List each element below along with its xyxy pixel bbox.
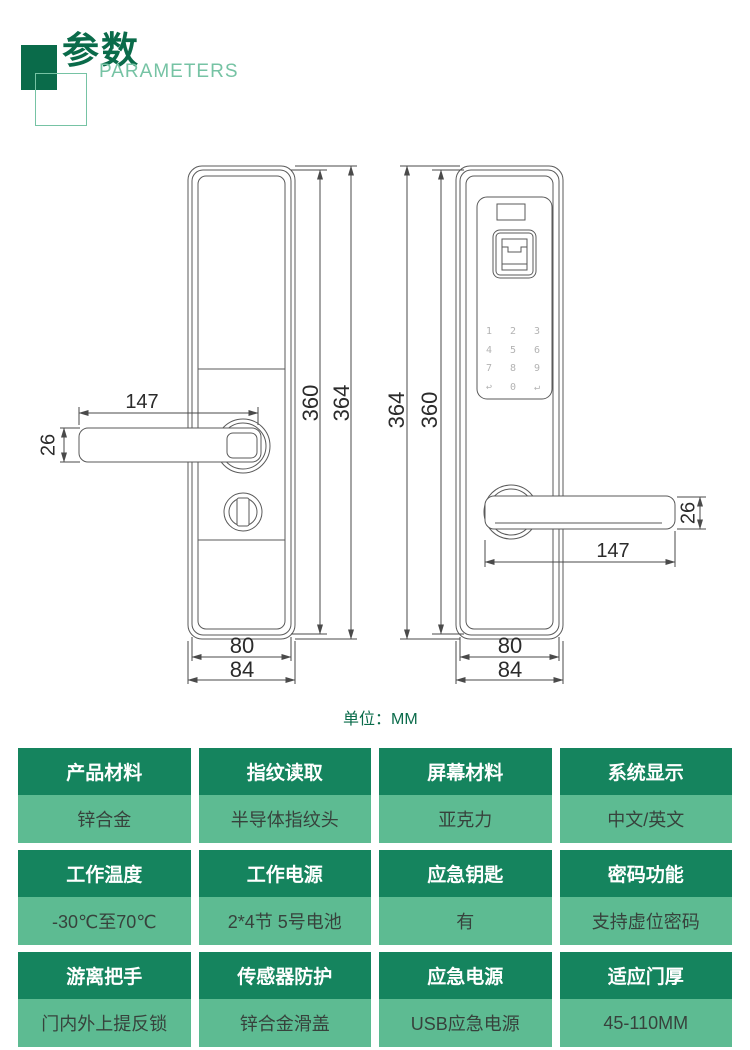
spec-table: 产品材料 锌合金 指纹读取 半导体指纹头 屏幕材料 亚克力 系统显示 中文/英文…	[18, 748, 732, 1047]
spec-header: 游离把手	[18, 952, 191, 999]
unit-label: 单位：MM	[343, 705, 418, 729]
dim-body-height-inner-back: 360	[298, 385, 323, 422]
spec-cell-system-display: 系统显示 中文/英文	[560, 748, 733, 843]
dimension-drawing: 147 26 360 364 80 84 364 360 26 147 80 8…	[0, 140, 750, 720]
key-5: 5	[510, 345, 516, 356]
back-body-outer	[188, 166, 295, 639]
key-4: 4	[486, 345, 492, 356]
key-9: 9	[534, 363, 540, 374]
spec-cell-fingerprint-reader: 指纹读取 半导体指纹头	[199, 748, 372, 843]
spec-value: USB应急电源	[379, 999, 552, 1047]
spec-value: 锌合金	[18, 795, 191, 843]
decor-outline-square	[35, 73, 87, 126]
spec-cell-power-supply: 工作电源 2*4节 5号电池	[199, 850, 372, 945]
spec-header: 指纹读取	[199, 748, 372, 795]
spec-cell-free-handle: 游离把手 门内外上提反锁	[18, 952, 191, 1047]
spec-value: 支持虚位密码	[560, 897, 733, 945]
spec-value: 门内外上提反锁	[18, 999, 191, 1047]
page-subtitle: PARAMETERS	[99, 61, 239, 83]
dim-handle-length-front: 147	[596, 540, 629, 562]
dim-handle-height-back: 26	[37, 434, 59, 456]
dim-body-width-inner-back: 80	[230, 633, 254, 658]
dim-body-height-inner-front: 360	[417, 392, 442, 429]
dim-body-width-outer-front: 84	[498, 657, 522, 682]
spec-cell-emergency-key: 应急钥匙 有	[379, 850, 552, 945]
spec-header: 密码功能	[560, 850, 733, 897]
spec-cell-product-material: 产品材料 锌合金	[18, 748, 191, 843]
indicator-window	[497, 204, 525, 220]
key-2: 2	[510, 326, 516, 337]
dim-body-height-outer-back: 364	[329, 385, 354, 422]
spec-value: 中文/英文	[560, 795, 733, 843]
key-enter: ↵	[534, 382, 540, 393]
spec-cell-password-function: 密码功能 支持虚位密码	[560, 850, 733, 945]
spec-header: 适应门厚	[560, 952, 733, 999]
spec-value: 有	[379, 897, 552, 945]
spec-value: 半导体指纹头	[199, 795, 372, 843]
spec-header: 产品材料	[18, 748, 191, 795]
keypad-keys: 1 2 3 4 5 6 7 8 9 ↩ 0 ↵	[486, 326, 540, 393]
lock-front-view	[456, 166, 675, 639]
spec-header: 工作电源	[199, 850, 372, 897]
spec-value: 锌合金滑盖	[199, 999, 372, 1047]
spec-header: 应急钥匙	[379, 850, 552, 897]
spec-cell-working-temperature: 工作温度 -30℃至70℃	[18, 850, 191, 945]
spec-header: 屏幕材料	[379, 748, 552, 795]
dim-body-width-inner-front: 80	[498, 633, 522, 658]
spec-value: -30℃至70℃	[18, 897, 191, 945]
key-6: 6	[534, 345, 540, 356]
dim-handle-length-back: 147	[125, 391, 158, 413]
fingerprint-module	[493, 230, 536, 278]
dim-body-height-outer-front: 364	[384, 392, 409, 429]
key-back: ↩	[486, 382, 492, 393]
spec-header: 系统显示	[560, 748, 733, 795]
product-parameters-page: 参数 PARAMETERS	[0, 0, 750, 1050]
spec-header: 传感器防护	[199, 952, 372, 999]
key-3: 3	[534, 326, 540, 337]
spec-cell-door-thickness: 适应门厚 45-110MM	[560, 952, 733, 1047]
spec-value: 2*4节 5号电池	[199, 897, 372, 945]
dim-handle-height-front: 26	[677, 502, 699, 524]
spec-cell-screen-material: 屏幕材料 亚克力	[379, 748, 552, 843]
spec-value: 亚克力	[379, 795, 552, 843]
spec-cell-sensor-protection: 传感器防护 锌合金滑盖	[199, 952, 372, 1047]
spec-header: 应急电源	[379, 952, 552, 999]
spec-header: 工作温度	[18, 850, 191, 897]
spec-cell-emergency-power: 应急电源 USB应急电源	[379, 952, 552, 1047]
lock-back-view	[79, 166, 295, 639]
exterior-handle	[485, 496, 675, 529]
dim-body-width-outer-back: 84	[230, 657, 254, 682]
key-7: 7	[486, 363, 492, 374]
front-body-outer	[456, 166, 563, 639]
key-1: 1	[486, 326, 492, 337]
spec-value: 45-110MM	[560, 999, 733, 1047]
key-0: 0	[510, 382, 516, 393]
key-8: 8	[510, 363, 516, 374]
